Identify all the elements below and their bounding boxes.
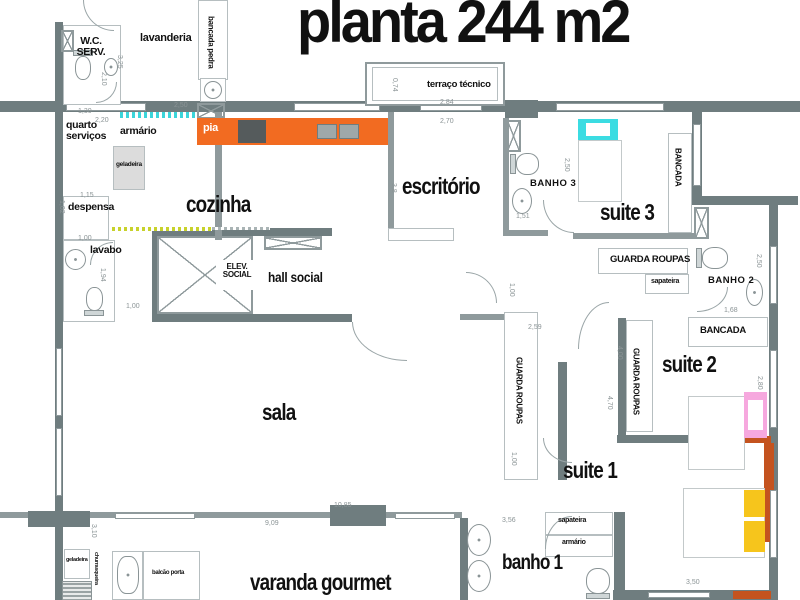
plan-title: planta 244 m2 xyxy=(297,0,628,56)
sink-basin-right-icon xyxy=(339,124,359,139)
window-sala-left2 xyxy=(56,428,62,496)
dim-356: 3,56 xyxy=(502,517,516,524)
wall-suite3-bottom xyxy=(573,233,695,239)
dim-250-cozinha: 2,50 xyxy=(174,102,188,109)
dim-350: 3,50 xyxy=(686,579,700,586)
banho1-toilet-icon xyxy=(586,568,610,594)
dim-194: 1,94 xyxy=(99,268,106,282)
hall-door-arc xyxy=(352,322,407,361)
dim-38: 3,8 xyxy=(390,183,397,193)
lavabo-sink-icon xyxy=(65,249,86,270)
label-pia: pia xyxy=(203,123,218,135)
window-suite1 xyxy=(770,490,777,558)
suite3-door-arc xyxy=(543,200,574,233)
dim-325: 3,25 xyxy=(116,55,123,69)
dim-470: 4,70 xyxy=(606,396,613,410)
churrasqueira-grill-icon xyxy=(62,581,92,600)
dim-102: 1,02 xyxy=(58,200,65,214)
wall-banho3-bottom xyxy=(503,230,548,236)
window-right-upper xyxy=(693,124,701,186)
label-suite1: suite 1 xyxy=(563,458,617,482)
label-guarda-roupas-suite3: GUARDA ROUPAS xyxy=(610,255,690,265)
suite1-pillow-bottom xyxy=(744,521,765,552)
label-bancada-suite3: BANCADA xyxy=(673,148,681,186)
banho3-toilet-icon xyxy=(516,153,539,175)
label-sala: sala xyxy=(262,400,295,424)
dim-284: 2,84 xyxy=(440,99,454,106)
label-bancada-pedra: bancada pedra xyxy=(206,16,214,69)
washer-icon xyxy=(197,103,225,119)
label-lavanderia: lavanderia xyxy=(140,33,191,45)
label-balcao-porta: balcão porta xyxy=(152,570,184,576)
wall-sapateira-right xyxy=(614,512,625,600)
dim-270: 2,70 xyxy=(440,118,454,125)
counter-glass-dashed xyxy=(120,112,197,118)
floor-plan: planta 244 m2 xyxy=(0,0,800,600)
label-armario-cozinha: armário xyxy=(120,126,156,137)
pia-counter xyxy=(197,118,388,145)
suite3-bed xyxy=(578,140,622,202)
dim-280: 2,80 xyxy=(756,376,763,390)
window-sala-left1 xyxy=(56,348,62,416)
label-banho1: banho 1 xyxy=(502,552,562,574)
dim-130: 1,30 xyxy=(78,108,92,115)
wall-banho1-left xyxy=(460,518,468,600)
stove-block xyxy=(238,120,266,143)
label-sapateira-suite1: sapateira xyxy=(558,517,586,524)
banho1-sink1-icon xyxy=(467,524,491,556)
wall-step xyxy=(692,196,798,205)
wall-corridor xyxy=(460,314,508,320)
suite2-door-arc xyxy=(578,302,609,349)
banho1-sink2-icon xyxy=(467,560,491,592)
lavabo-toilet-tank-icon xyxy=(84,310,104,316)
wall-chunk-left xyxy=(28,511,90,527)
label-churrasqueira: churrasqueira xyxy=(92,552,98,585)
banho3-shaft xyxy=(506,120,521,152)
dim-100-corridor: 1,00 xyxy=(508,283,515,297)
label-banho2: BANHO 2 xyxy=(708,276,754,286)
window-varanda-right xyxy=(395,513,455,519)
label-despensa: despensa xyxy=(68,202,114,213)
elevator-service-shaft xyxy=(264,236,322,250)
suite2-pink-inner xyxy=(748,400,763,430)
wall-shaft-block xyxy=(505,100,538,118)
label-lavabo: lavabo xyxy=(90,245,121,256)
banho3-sink-icon xyxy=(512,188,532,214)
dim-074: 0,74 xyxy=(391,78,398,92)
label-banho3: BANHO 3 xyxy=(530,179,576,189)
label-armario-suite1: armário xyxy=(562,539,586,546)
suite1-pillow-top xyxy=(744,490,765,517)
wall-hall-top xyxy=(260,228,332,236)
dim-250-banho3: 2,50 xyxy=(563,158,570,172)
label-cozinha: cozinha xyxy=(186,192,250,216)
label-guarda-roupas-corridor1: GUARDA ROUPAS xyxy=(514,357,522,424)
dim-210: 2,10 xyxy=(100,72,107,86)
dim-250-banho2: 2,50 xyxy=(755,254,762,268)
label-escritorio: escritório xyxy=(402,174,480,198)
dim-115: 1,15 xyxy=(80,192,94,199)
dim-259: 2,59 xyxy=(528,324,542,331)
dim-100-lavabo: 1,00 xyxy=(126,303,140,310)
dim-400: 4,00 xyxy=(616,346,623,360)
label-guarda-roupas-corridor2: GUARDA ROUPAS xyxy=(631,348,639,415)
label-geladeira-cozinha: geladeira xyxy=(116,162,142,169)
dim-310: 3,10 xyxy=(90,524,97,538)
dim-100-lavabo-top: 1,00 xyxy=(78,235,92,242)
label-terraco-tecnico: terraço técnico xyxy=(427,80,491,90)
dim-909: 9,09 xyxy=(265,520,279,527)
label-varanda-gourmet: varanda gourmet xyxy=(250,570,391,594)
sink-basin-left-icon xyxy=(317,124,337,139)
cozinha-threshold-dashed xyxy=(112,227,212,231)
label-sapateira-suite3: sapateira xyxy=(651,278,679,285)
banho1-toilet-tank-icon xyxy=(586,593,610,599)
dim-168: 1,68 xyxy=(724,307,738,314)
label-hall-social: hall social xyxy=(268,270,323,285)
cozinha-threshold-gray xyxy=(212,227,270,230)
label-elev-social: ELEV. SOCIAL xyxy=(218,263,256,280)
window-top-suite3 xyxy=(556,103,664,111)
tub-icon xyxy=(117,556,139,594)
dim-220: 2,20 xyxy=(95,117,109,124)
wall-hall-bottom xyxy=(260,314,352,322)
banho2-shaft xyxy=(694,207,709,239)
label-wc-serv: W.C. SERV. xyxy=(66,36,116,58)
rust-wall-bottom xyxy=(733,591,771,599)
banho2-toilet-icon xyxy=(702,247,728,269)
dim-151: 1,51 xyxy=(516,213,530,220)
window-varanda-left xyxy=(115,513,195,519)
window-suite2 xyxy=(770,350,777,428)
window-banho2 xyxy=(770,246,777,304)
suite2-bed xyxy=(688,396,745,470)
escritorio-desk xyxy=(388,228,454,241)
suite3-shower-inner xyxy=(586,123,610,136)
window-bottom-suite1 xyxy=(648,592,710,598)
corridor-door-arc xyxy=(466,272,497,303)
label-geladeira-varanda: geladeira xyxy=(66,558,87,564)
label-suite2: suite 2 xyxy=(662,352,716,376)
wall-suite2-left xyxy=(618,318,626,436)
wall-elev-bottom xyxy=(152,314,260,322)
geladeira-varanda-box xyxy=(64,549,90,579)
lavabo-toilet-icon xyxy=(86,287,103,311)
dim-1085: 10,85 xyxy=(334,502,352,509)
tanque-basin-icon xyxy=(204,81,222,99)
label-suite3: suite 3 xyxy=(600,200,654,224)
label-bancada-suite2: BANCADA xyxy=(700,326,746,336)
wc-toilet-icon xyxy=(75,56,91,80)
wall-escritorio-left xyxy=(388,112,394,240)
dim-100-suite1: 1,00 xyxy=(510,452,517,466)
